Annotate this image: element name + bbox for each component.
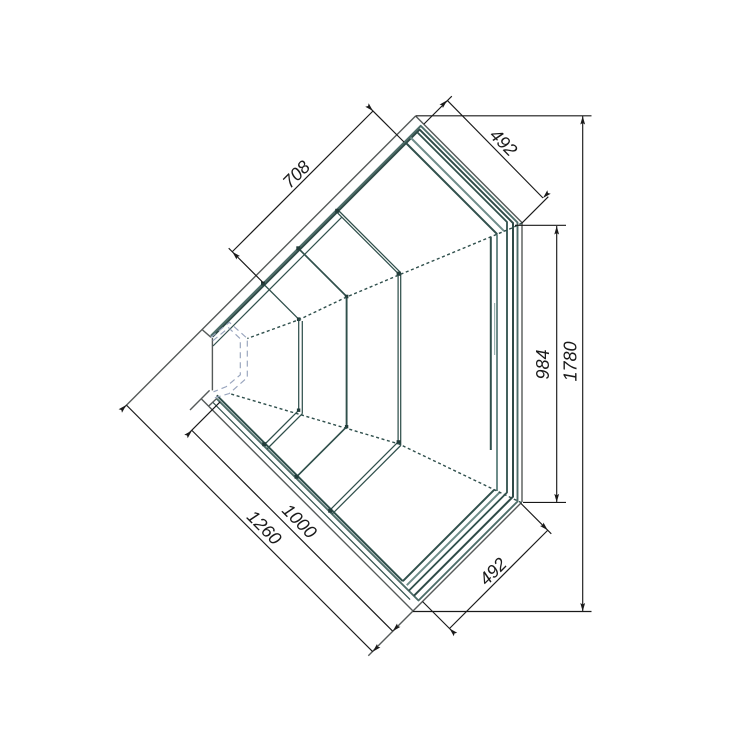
svg-text:1780: 1780 (561, 341, 581, 381)
svg-text:984: 984 (533, 349, 553, 379)
